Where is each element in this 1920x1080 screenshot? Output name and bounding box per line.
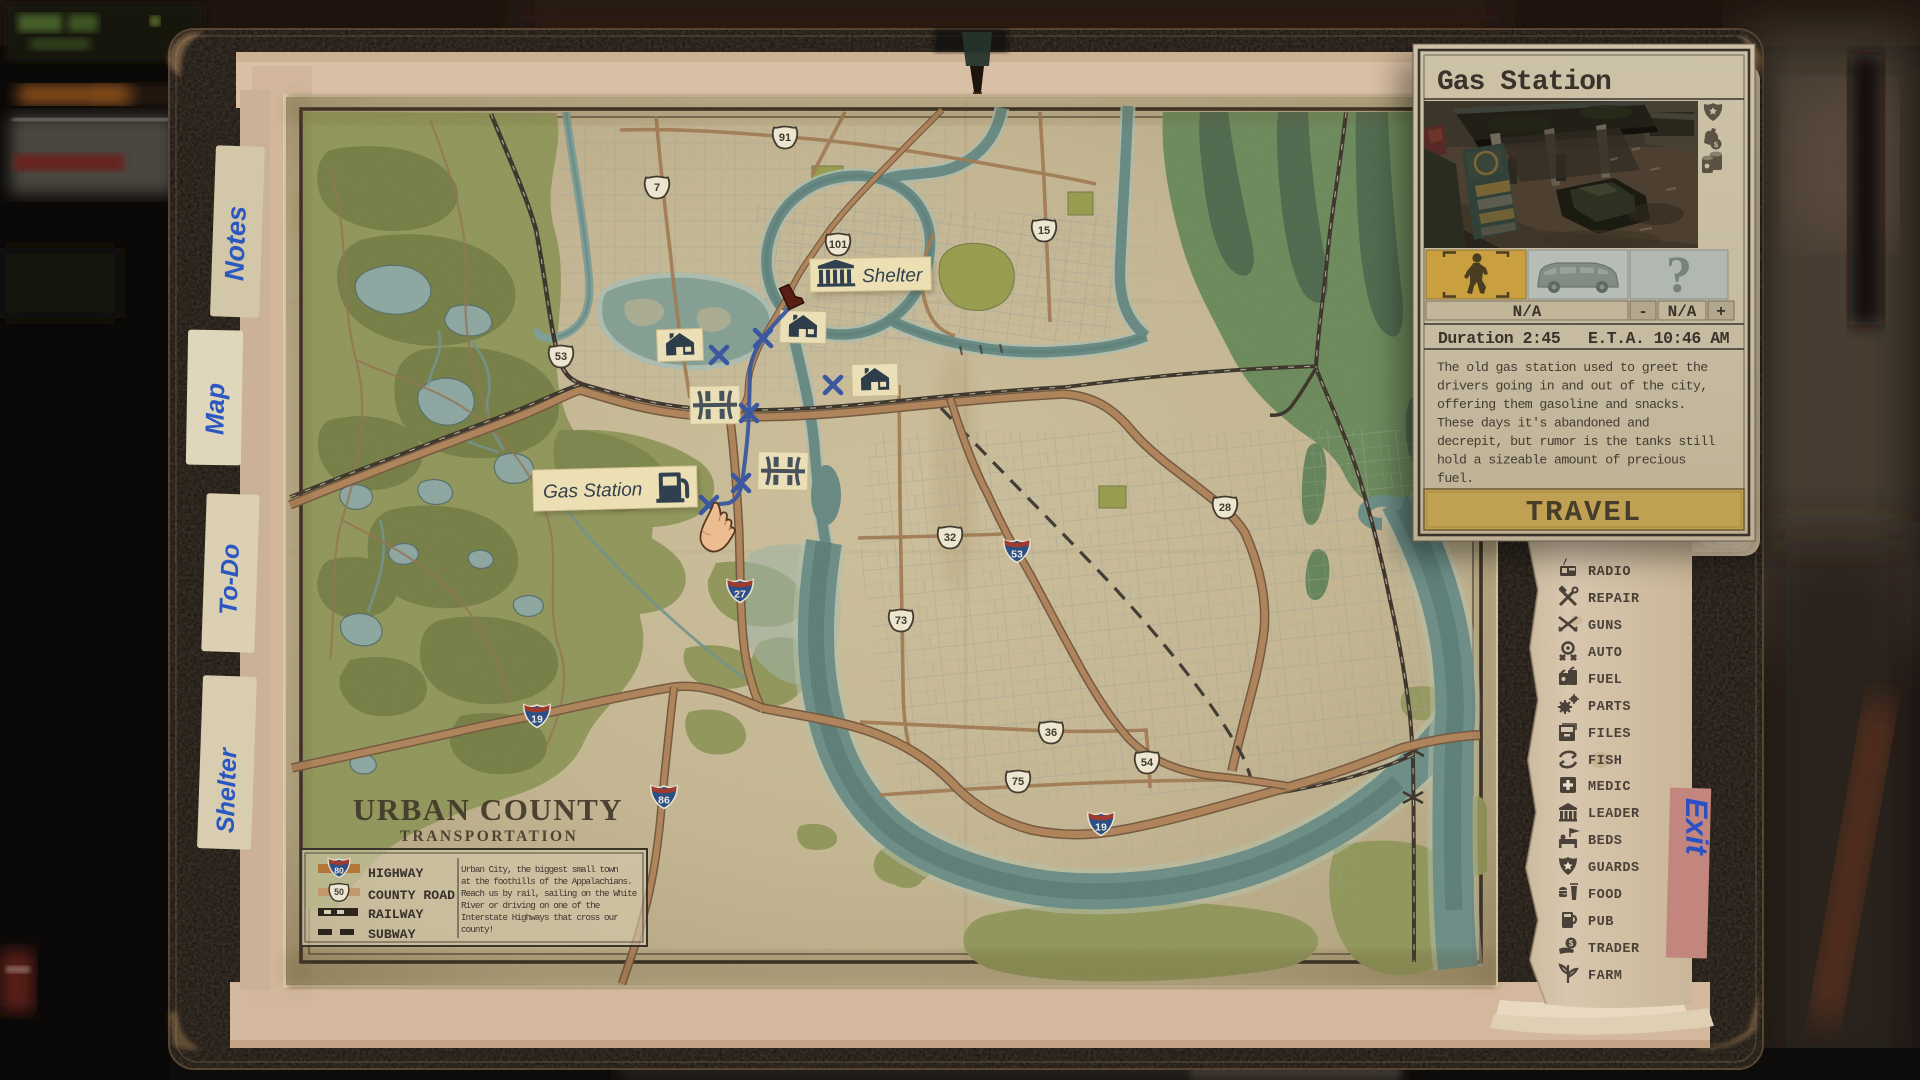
- svg-text:FARM: FARM: [1588, 969, 1622, 984]
- svg-text:offering them gasoline and sna: offering them gasoline and snacks.: [1437, 397, 1686, 412]
- svg-text:Exit: Exit: [1679, 798, 1715, 857]
- svg-text:53: 53: [1011, 549, 1023, 561]
- svg-text:fuel.: fuel.: [1437, 471, 1474, 486]
- svg-text:at the foothills of the Appala: at the foothills of the Appalachians.: [461, 876, 632, 887]
- svg-text:101: 101: [829, 239, 847, 251]
- svg-text:TRANSPORTATION: TRANSPORTATION: [400, 828, 579, 845]
- svg-text:28: 28: [1219, 502, 1231, 514]
- svg-text:BEDS: BEDS: [1588, 834, 1622, 849]
- svg-text:32: 32: [944, 532, 956, 544]
- svg-text:-: -: [1638, 303, 1648, 321]
- svg-text:Duration 2:45: Duration 2:45: [1438, 329, 1561, 348]
- svg-text:REPAIR: REPAIR: [1588, 592, 1640, 607]
- svg-text:75: 75: [1012, 776, 1024, 788]
- svg-text:86: 86: [658, 795, 670, 807]
- svg-text:53: 53: [555, 351, 567, 363]
- svg-text:19: 19: [1095, 822, 1107, 834]
- svg-text:URBAN COUNTY: URBAN COUNTY: [353, 792, 623, 827]
- svg-text:FUEL: FUEL: [1588, 673, 1622, 688]
- svg-text:RADIO: RADIO: [1588, 565, 1631, 580]
- svg-text:$: $: [1569, 939, 1574, 948]
- svg-text:Shelter: Shelter: [212, 747, 243, 834]
- svg-text:27: 27: [734, 589, 746, 601]
- svg-text:The old gas station used to gr: The old gas station used to greet the: [1437, 360, 1708, 375]
- svg-text:TRADER: TRADER: [1588, 942, 1640, 957]
- svg-text:HIGHWAY: HIGHWAY: [368, 866, 423, 881]
- svg-text:FISH: FISH: [1588, 754, 1622, 769]
- svg-text:7: 7: [654, 182, 660, 194]
- svg-text:Urban City, the biggest small: Urban City, the biggest small town: [461, 864, 618, 875]
- svg-text:E.T.A. 10:46 AM: E.T.A. 10:46 AM: [1588, 329, 1730, 348]
- svg-text:drivers going in and out of th: drivers going in and out of the city,: [1437, 379, 1708, 394]
- svg-text:PARTS: PARTS: [1588, 700, 1631, 715]
- svg-text:RAILWAY: RAILWAY: [368, 907, 423, 922]
- svg-text:19: 19: [531, 714, 543, 726]
- svg-text:Gas Station: Gas Station: [1437, 67, 1611, 98]
- svg-text:80: 80: [334, 865, 344, 875]
- svg-text:Notes: Notes: [219, 205, 252, 281]
- svg-text:GUARDS: GUARDS: [1588, 861, 1640, 876]
- svg-text:MEDIC: MEDIC: [1588, 780, 1631, 795]
- svg-text:?: ?: [1666, 247, 1692, 304]
- svg-text:91: 91: [779, 132, 791, 144]
- svg-text:COUNTY ROAD: COUNTY ROAD: [368, 888, 455, 903]
- svg-text:Map: Map: [199, 383, 230, 436]
- svg-text:Reach us by rail, sailing on t: Reach us by rail, sailing on the White: [461, 888, 637, 899]
- svg-text:Shelter: Shelter: [862, 265, 923, 287]
- svg-text:N/A: N/A: [1668, 303, 1697, 321]
- svg-text:73: 73: [895, 615, 907, 627]
- svg-text:+: +: [1716, 303, 1726, 321]
- svg-text:54: 54: [1141, 757, 1154, 769]
- svg-text:FILES: FILES: [1588, 727, 1631, 742]
- svg-text:Interstate Highways that cross: Interstate Highways that cross our: [461, 912, 618, 923]
- svg-text:To-Do: To-Do: [215, 543, 245, 615]
- svg-text:SUBWAY: SUBWAY: [368, 927, 416, 942]
- svg-text:N/A: N/A: [1513, 303, 1542, 321]
- svg-text:TRAVEL: TRAVEL: [1526, 496, 1642, 529]
- svg-text:AUTO: AUTO: [1588, 646, 1622, 661]
- svg-text:50: 50: [334, 887, 344, 897]
- svg-text:River or driving on one of the: River or driving on one of the: [461, 900, 600, 911]
- svg-text:15: 15: [1038, 225, 1050, 237]
- svg-text:FOOD: FOOD: [1588, 888, 1622, 903]
- svg-text:LEADER: LEADER: [1588, 807, 1640, 822]
- svg-text:Gas Station: Gas Station: [543, 479, 643, 503]
- svg-text:36: 36: [1045, 727, 1057, 739]
- svg-text:PUB: PUB: [1588, 915, 1614, 930]
- svg-text:These days it's abandoned and: These days it's abandoned and: [1437, 416, 1649, 431]
- svg-text:decrepit, but rumor is the tan: decrepit, but rumor is the tanks still: [1437, 434, 1716, 449]
- svg-text:county!: county!: [461, 924, 493, 935]
- svg-text:hold a sizeable amount of prec: hold a sizeable amount of precious: [1437, 453, 1686, 468]
- svg-text:GUNS: GUNS: [1588, 619, 1622, 634]
